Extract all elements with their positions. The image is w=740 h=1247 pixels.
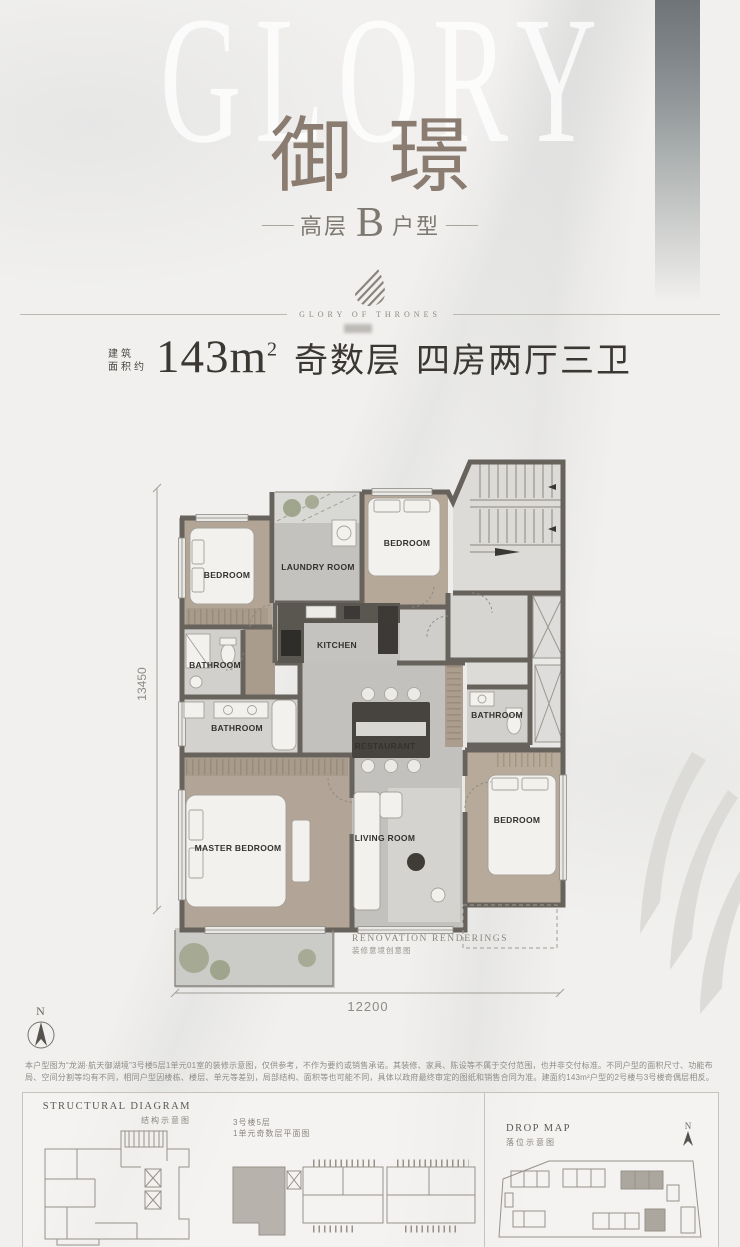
watermark-leaf-icon xyxy=(630,752,740,1014)
structural-title-en: STRUCTURAL DIAGRAM xyxy=(23,1101,191,1112)
rooms-descriptor: 四房两厅三卫 xyxy=(416,343,632,380)
footer-divider xyxy=(484,1093,485,1247)
room-label: RESTAURANT xyxy=(355,741,416,751)
structural-diagram xyxy=(37,1127,197,1247)
dropmap-title-en: DROP MAP xyxy=(506,1123,571,1134)
room-label: BEDROOM xyxy=(494,815,541,825)
area-exponent: 2 xyxy=(267,338,278,360)
room-label: LAUNDRY ROOM xyxy=(281,562,355,572)
north-compass: N xyxy=(22,1004,60,1058)
brand-left-rule xyxy=(20,314,287,315)
middle-plate-diagram xyxy=(229,1155,479,1247)
room-label: BEDROOM xyxy=(204,570,251,580)
footer-section: STRUCTURAL DIAGRAM 结构示意图 3号楼5层 1单元奇数层平面图 xyxy=(22,1092,719,1247)
subtitle-suffix: 户型 xyxy=(392,209,440,241)
floor-plan: BEDROOM LAUNDRY ROOM BEDROOM BATHROOM KI… xyxy=(120,440,620,1020)
structural-title-cn: 结构示意图 xyxy=(23,1115,191,1126)
subtitle-right-rule xyxy=(446,225,478,226)
north-arrow-icon xyxy=(22,1019,60,1053)
subtitle-letter: B xyxy=(356,202,384,244)
spec-row: 建筑 面积约 143m2 奇数层四房两厅三卫 xyxy=(0,334,740,381)
room-label: BATHROOM xyxy=(471,710,523,720)
disclaimer-text: 本户型图为“龙湖·航天御湖境”3号楼5层1单元01室的装修示意图，仅供参考，不作… xyxy=(25,1060,717,1083)
subtitle-left-rule xyxy=(262,225,294,226)
area-value: 143m2 xyxy=(156,334,278,381)
area-label-top: 建筑 xyxy=(108,348,147,361)
compass-n-label: N xyxy=(22,1004,60,1019)
coffee-table-icon xyxy=(407,853,425,871)
bathtub-icon xyxy=(272,700,296,750)
room-label: BATHROOM xyxy=(211,723,263,733)
stove-icon xyxy=(281,630,301,656)
area-label-bottom: 面积约 xyxy=(108,361,147,374)
middle-label-line2: 1单元奇数层平面图 xyxy=(233,1128,310,1139)
middle-diagram-label: 3号楼5层 1单元奇数层平面图 xyxy=(233,1117,310,1139)
sofa-icon xyxy=(354,792,380,910)
middle-label-line1: 3号楼5层 xyxy=(233,1117,310,1128)
dimension-left: 13450 xyxy=(135,667,149,701)
renovation-note-cn: 装修意境创意图 xyxy=(352,945,412,955)
area-number: 143m xyxy=(156,331,267,383)
footer-north-compass: N xyxy=(678,1121,698,1149)
subtitle: 高层 B 户型 xyxy=(0,204,740,246)
room-label: KITCHEN xyxy=(317,640,357,650)
room-label: BEDROOM xyxy=(384,538,431,548)
room-label: BATHROOM xyxy=(189,660,241,670)
fridge-icon xyxy=(378,606,398,654)
brand-text: GLORY OF THRONES xyxy=(299,310,441,319)
room-label: LIVING ROOM xyxy=(355,833,415,843)
subtitle-prefix: 高层 xyxy=(300,209,348,241)
drop-map-diagram xyxy=(493,1155,725,1245)
page-title: 御璟 xyxy=(0,116,740,198)
area-label: 建筑 面积约 xyxy=(108,348,147,374)
dropmap-title-cn: 落位示意图 xyxy=(506,1137,556,1148)
floor-parity: 奇数层 xyxy=(294,343,402,380)
footer-north-arrow-icon xyxy=(681,1131,695,1147)
room-label: MASTER BEDROOM xyxy=(195,843,282,853)
layout-descriptor: 奇数层四房两厅三卫 xyxy=(294,345,632,379)
bed-icon xyxy=(190,528,254,604)
seal-mark xyxy=(344,324,372,333)
dimension-bottom: 12200 xyxy=(347,999,388,1014)
brand-line: GLORY OF THRONES xyxy=(20,310,720,319)
footer-compass-n-label: N xyxy=(685,1121,692,1131)
renovation-note-en: RENOVATION RENDERINGS xyxy=(352,934,508,944)
washer-icon xyxy=(332,520,356,546)
brand-right-rule xyxy=(453,314,720,315)
brand-leaf-icon xyxy=(353,256,387,306)
